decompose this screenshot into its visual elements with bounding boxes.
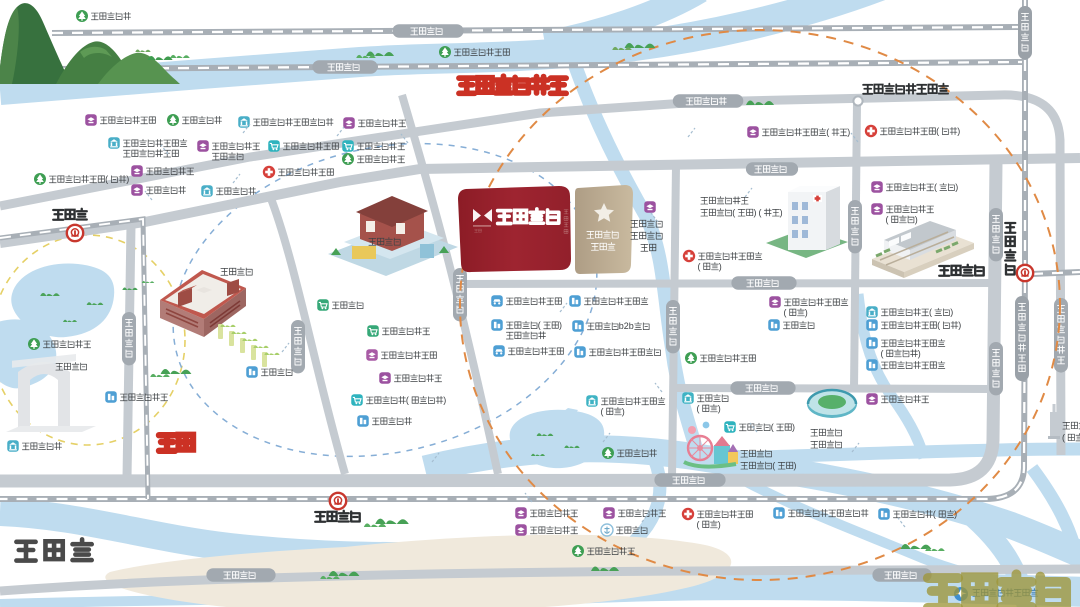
- svg-text:): ): [754, 207, 757, 217]
- svg-text:): ): [718, 403, 721, 413]
- svg-text:(: (: [406, 395, 409, 405]
- svg-text:): ): [918, 348, 921, 358]
- svg-text:): ): [794, 460, 797, 470]
- svg-text:(: (: [538, 320, 541, 330]
- svg-text:): ): [622, 406, 625, 416]
- svg-text:(: (: [881, 348, 884, 358]
- svg-text:(: (: [601, 406, 604, 416]
- svg-text:): ): [443, 395, 446, 405]
- svg-text:(: (: [771, 422, 774, 432]
- svg-text:b: b: [629, 321, 634, 331]
- svg-text:(: (: [886, 214, 889, 224]
- svg-text:(: (: [732, 207, 735, 217]
- svg-text:): ): [915, 214, 918, 224]
- svg-text:): ): [780, 207, 783, 217]
- svg-text:): ): [805, 307, 808, 317]
- svg-text:): ): [950, 307, 953, 317]
- svg-text:(: (: [826, 127, 829, 137]
- svg-text:): ): [957, 126, 960, 136]
- svg-text:): ): [126, 174, 129, 184]
- svg-text:(: (: [1062, 432, 1065, 442]
- svg-text:(: (: [784, 307, 787, 317]
- svg-text:(: (: [697, 403, 700, 413]
- svg-text:): ): [718, 519, 721, 529]
- svg-text:(: (: [934, 182, 937, 192]
- svg-text:(: (: [933, 509, 936, 519]
- svg-text:(: (: [937, 320, 940, 330]
- svg-text:(: (: [697, 519, 700, 529]
- svg-text:): ): [847, 127, 850, 137]
- svg-text:): ): [559, 320, 562, 330]
- svg-text:): ): [792, 422, 795, 432]
- svg-text:(: (: [105, 174, 108, 184]
- svg-text:): ): [719, 261, 722, 271]
- svg-text:(: (: [936, 126, 939, 136]
- svg-text:(: (: [772, 460, 775, 470]
- svg-text:): ): [958, 320, 961, 330]
- svg-text:(: (: [698, 261, 701, 271]
- svg-text:(: (: [759, 207, 762, 217]
- svg-text:): ): [955, 182, 958, 192]
- svg-text:(: (: [929, 307, 932, 317]
- svg-text:): ): [954, 509, 957, 519]
